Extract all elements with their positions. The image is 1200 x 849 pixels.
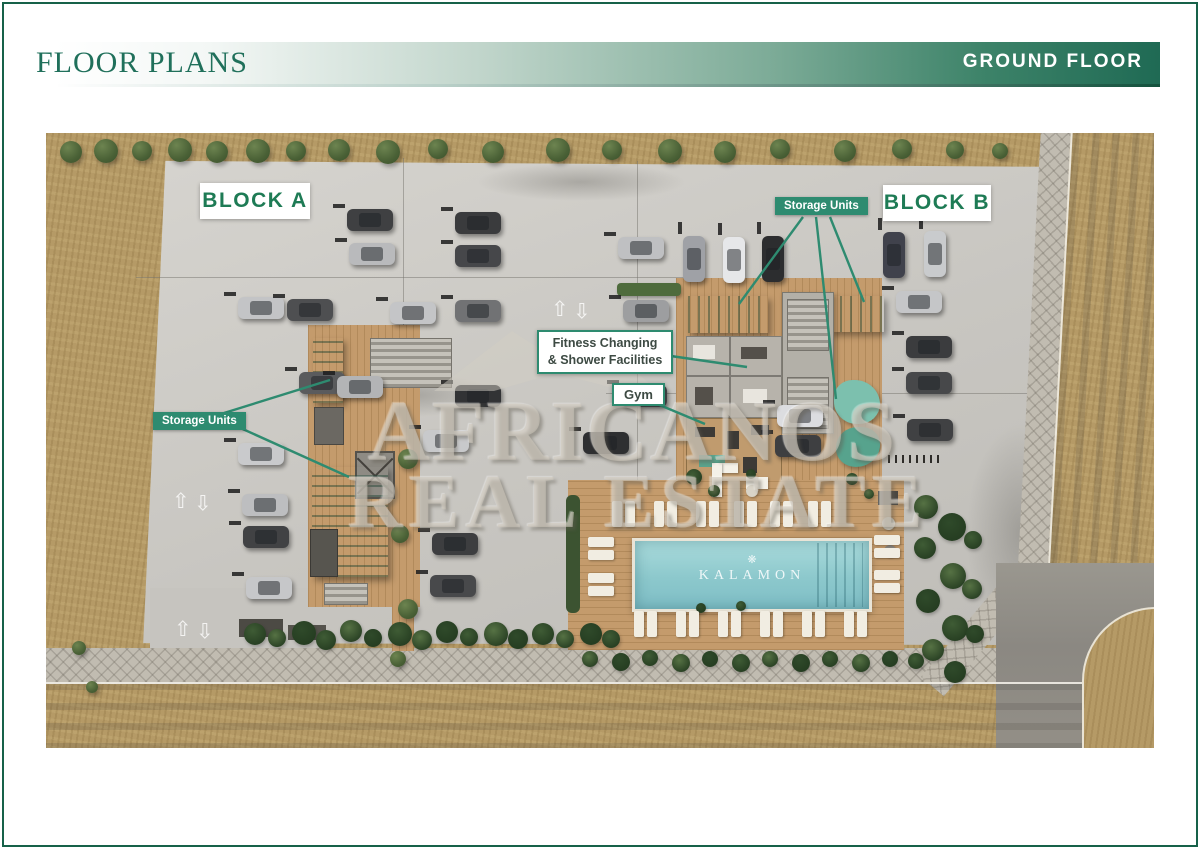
watermark-line2: REAL ESTATE bbox=[348, 459, 929, 546]
car bbox=[906, 372, 952, 394]
car bbox=[455, 300, 501, 322]
car-windshield bbox=[928, 243, 942, 265]
bush bbox=[822, 651, 838, 667]
bush bbox=[642, 650, 658, 666]
tree bbox=[546, 138, 570, 162]
lounger bbox=[634, 611, 657, 637]
floor-badge: GROUND FLOOR bbox=[963, 51, 1143, 73]
bush bbox=[460, 628, 478, 646]
parking-stall-mark bbox=[224, 292, 236, 296]
lounger bbox=[844, 611, 867, 637]
fitness-label: Fitness Changing & Shower Facilities bbox=[537, 330, 673, 374]
shower-fixture bbox=[693, 345, 715, 359]
parking-stall-mark bbox=[273, 294, 285, 298]
parking-stall-mark bbox=[376, 297, 388, 301]
bush bbox=[436, 621, 458, 643]
tree bbox=[206, 141, 228, 163]
bush bbox=[938, 513, 966, 541]
car bbox=[238, 297, 284, 319]
partition-wall bbox=[687, 375, 781, 377]
sun-lounger bbox=[689, 611, 699, 637]
floor-plan-page: FLOOR PLANS GROUND FLOOR bbox=[0, 0, 1200, 849]
parking-stall-mark bbox=[441, 295, 453, 299]
sun-lounger bbox=[760, 611, 770, 637]
block-a-lower-stairs bbox=[324, 583, 368, 605]
tree bbox=[834, 140, 856, 162]
car-windshield bbox=[258, 581, 280, 595]
pavement-arrows: ⇧⇧ bbox=[551, 299, 590, 320]
parking-stall-mark bbox=[335, 238, 347, 242]
car-windshield bbox=[467, 249, 489, 263]
bush bbox=[340, 620, 362, 642]
sun-lounger bbox=[588, 573, 614, 583]
car bbox=[896, 291, 942, 313]
car-windshield bbox=[299, 303, 321, 317]
car-windshield bbox=[442, 579, 464, 593]
car-windshield bbox=[887, 244, 901, 266]
block-a-storage-boxes bbox=[310, 529, 338, 577]
stair-flight bbox=[787, 299, 829, 351]
tree bbox=[390, 651, 406, 667]
car bbox=[242, 494, 288, 516]
fitness-label-line2: & Shower Facilities bbox=[548, 352, 663, 369]
parking-stall-mark bbox=[323, 371, 335, 375]
lounger bbox=[676, 611, 699, 637]
tree bbox=[328, 139, 350, 161]
car bbox=[238, 443, 284, 465]
tree bbox=[482, 141, 504, 163]
car bbox=[349, 243, 395, 265]
tree bbox=[72, 641, 86, 655]
car-windshield bbox=[687, 248, 701, 270]
block-b-storage-canopy-left bbox=[688, 296, 768, 333]
sun-lounger bbox=[718, 611, 728, 637]
arrow-down-icon: ⇧ bbox=[194, 491, 212, 512]
sun-lounger bbox=[857, 611, 867, 637]
sun-lounger bbox=[634, 611, 644, 637]
bush bbox=[792, 654, 810, 672]
car bbox=[623, 300, 669, 322]
swimming-pool: ❋ KALAMON bbox=[632, 538, 872, 612]
bush bbox=[732, 654, 750, 672]
tree bbox=[602, 140, 622, 160]
bush bbox=[966, 625, 984, 643]
car bbox=[287, 299, 333, 321]
tree bbox=[94, 139, 118, 163]
parking-stall-mark bbox=[228, 489, 240, 493]
bush bbox=[484, 622, 508, 646]
car-windshield bbox=[918, 340, 940, 354]
parking-stall-mark bbox=[878, 218, 882, 230]
bush bbox=[852, 654, 870, 672]
lounger bbox=[588, 573, 614, 596]
tree bbox=[86, 681, 98, 693]
car bbox=[455, 212, 501, 234]
bush bbox=[944, 661, 966, 683]
tree bbox=[286, 141, 306, 161]
sun-lounger bbox=[844, 611, 854, 637]
tree bbox=[132, 141, 152, 161]
parking-stall-mark bbox=[892, 331, 904, 335]
sun-lounger bbox=[874, 583, 900, 593]
bush bbox=[922, 639, 944, 661]
bush bbox=[908, 653, 924, 669]
tree bbox=[658, 139, 682, 163]
site-plan-image: ❋ KALAMON ⇧⇧⇧⇧⇧⇧ AFRICANOS REAL ESTATE B… bbox=[46, 133, 1154, 748]
bush bbox=[582, 651, 598, 667]
tree bbox=[168, 138, 192, 162]
car-windshield bbox=[727, 249, 741, 271]
parking-stall-mark bbox=[333, 204, 345, 208]
storage-units-label-left: Storage Units bbox=[153, 412, 246, 430]
sun-lounger bbox=[647, 611, 657, 637]
bush bbox=[412, 630, 432, 650]
sun-lounger bbox=[802, 611, 812, 637]
car-windshield bbox=[402, 306, 424, 320]
sun-lounger bbox=[731, 611, 741, 637]
car bbox=[906, 336, 952, 358]
lounger bbox=[718, 611, 741, 637]
bush bbox=[762, 651, 778, 667]
block-b-storage-canopy-right bbox=[830, 296, 884, 332]
bush bbox=[612, 653, 630, 671]
car bbox=[390, 302, 436, 324]
bush bbox=[532, 623, 554, 645]
car bbox=[924, 231, 946, 277]
fitness-label-line1: Fitness Changing bbox=[553, 335, 658, 352]
bush bbox=[602, 630, 620, 648]
bush bbox=[942, 615, 968, 641]
parking-stall-mark bbox=[285, 367, 297, 371]
bush bbox=[580, 623, 602, 645]
lounger bbox=[802, 611, 825, 637]
arrow-down-icon: ⇧ bbox=[196, 619, 214, 640]
storage-units-label-right: Storage Units bbox=[775, 197, 868, 215]
parking-stall-mark bbox=[229, 521, 241, 525]
bush bbox=[244, 623, 266, 645]
header-underline bbox=[55, 84, 1160, 87]
arrow-down-icon: ⇧ bbox=[573, 299, 591, 320]
parking-stall-mark bbox=[224, 438, 236, 442]
tree bbox=[60, 141, 82, 163]
sun-lounger bbox=[815, 611, 825, 637]
car-windshield bbox=[254, 498, 276, 512]
pool-label: ❋ KALAMON bbox=[635, 555, 869, 584]
lounger bbox=[874, 570, 900, 593]
bush bbox=[962, 579, 982, 599]
parking-stall-mark bbox=[718, 223, 722, 235]
car bbox=[883, 232, 905, 278]
car-windshield bbox=[908, 295, 930, 309]
car-windshield bbox=[919, 423, 941, 437]
car bbox=[246, 577, 292, 599]
car-windshield bbox=[918, 376, 940, 390]
parking-stall-mark bbox=[441, 240, 453, 244]
bush bbox=[964, 531, 982, 549]
car bbox=[347, 209, 393, 231]
car bbox=[430, 575, 476, 597]
car bbox=[907, 419, 953, 441]
bush bbox=[364, 629, 382, 647]
block-a-label: BLOCK A bbox=[200, 183, 310, 219]
expansion-joint bbox=[136, 277, 686, 278]
car bbox=[762, 236, 784, 282]
sun-lounger bbox=[588, 586, 614, 596]
kalamon-emblem-icon: ❋ bbox=[635, 555, 869, 566]
block-a-storage-shed bbox=[314, 407, 344, 445]
tree-shadow bbox=[476, 163, 686, 201]
parking-stall-mark bbox=[609, 295, 621, 299]
bush bbox=[508, 629, 528, 649]
car-windshield bbox=[467, 304, 489, 318]
pavement-arrows: ⇧⇧ bbox=[174, 619, 213, 640]
tree bbox=[376, 140, 400, 164]
sun-lounger bbox=[588, 550, 614, 560]
tree bbox=[428, 139, 448, 159]
lounger bbox=[760, 611, 783, 637]
car bbox=[455, 245, 501, 267]
parking-stall-mark bbox=[604, 232, 616, 236]
pavement-arrows: ⇧⇧ bbox=[172, 491, 211, 512]
tree bbox=[398, 599, 418, 619]
hedge-planter bbox=[617, 283, 681, 296]
sun-lounger bbox=[773, 611, 783, 637]
parking-stall-mark bbox=[416, 570, 428, 574]
sun-lounger bbox=[676, 611, 686, 637]
sun-lounger bbox=[874, 548, 900, 558]
block-b-label: BLOCK B bbox=[883, 185, 991, 221]
tree bbox=[714, 141, 736, 163]
parking-stall-mark bbox=[441, 207, 453, 211]
car bbox=[683, 236, 705, 282]
gym-label: Gym bbox=[612, 383, 665, 406]
bush bbox=[882, 651, 898, 667]
car-windshield bbox=[766, 248, 780, 270]
car bbox=[618, 237, 664, 259]
tree bbox=[992, 143, 1008, 159]
arrow-up-icon: ⇧ bbox=[172, 491, 190, 512]
car-windshield bbox=[630, 241, 652, 255]
bush bbox=[702, 651, 718, 667]
page-title: FLOOR PLANS bbox=[36, 46, 248, 80]
bush bbox=[556, 630, 574, 648]
sun-lounger bbox=[874, 570, 900, 580]
car bbox=[243, 526, 289, 548]
parking-stall-mark bbox=[232, 572, 244, 576]
arrow-up-icon: ⇧ bbox=[551, 299, 569, 320]
tree bbox=[770, 139, 790, 159]
bush bbox=[672, 654, 690, 672]
car-windshield bbox=[635, 304, 657, 318]
tree bbox=[946, 141, 964, 159]
car-windshield bbox=[467, 216, 489, 230]
tree bbox=[246, 139, 270, 163]
car-windshield bbox=[250, 301, 272, 315]
bush bbox=[292, 621, 316, 645]
bush bbox=[316, 630, 336, 650]
car-windshield bbox=[250, 447, 272, 461]
parking-stall-mark bbox=[757, 222, 761, 234]
bush bbox=[388, 622, 412, 646]
parking-stall-mark bbox=[678, 222, 682, 234]
car-windshield bbox=[255, 530, 277, 544]
car-windshield bbox=[311, 376, 333, 390]
locker-bench bbox=[741, 347, 767, 359]
car-windshield bbox=[361, 247, 383, 261]
arrow-up-icon: ⇧ bbox=[174, 619, 192, 640]
bush bbox=[736, 601, 746, 611]
bush bbox=[268, 629, 286, 647]
tree bbox=[892, 139, 912, 159]
pool-name: KALAMON bbox=[635, 568, 869, 584]
parking-stall-mark bbox=[882, 286, 894, 290]
bush bbox=[916, 589, 940, 613]
road-bottom bbox=[46, 682, 1154, 748]
parking-stall-mark bbox=[892, 367, 904, 371]
car bbox=[723, 237, 745, 283]
car-windshield bbox=[359, 213, 381, 227]
